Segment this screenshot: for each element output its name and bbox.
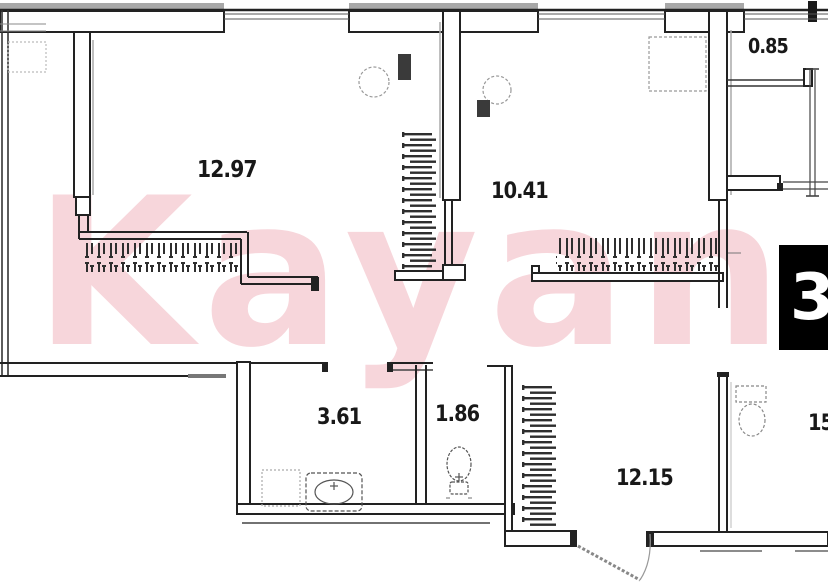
room-area-label-10-41: 10.41 xyxy=(491,181,548,203)
bottom-wall xyxy=(647,532,828,551)
floor-plan: Kayan xyxy=(0,0,828,585)
room-area-label-0-85: 0.85 xyxy=(748,36,788,56)
pier-middle xyxy=(440,11,460,272)
wardrobe-hatch-room1 xyxy=(83,243,239,272)
right-edge-window xyxy=(806,69,819,196)
floor-plan-drawing xyxy=(0,0,828,585)
unit-number: 3 xyxy=(790,266,828,330)
fixtures-room2 xyxy=(477,37,706,117)
middle-wall xyxy=(0,363,433,376)
room-area-label-12-15: 12.15 xyxy=(616,468,673,490)
room-area-label-15-cropped: 15 xyxy=(808,413,828,435)
left-exterior-wall xyxy=(0,10,46,377)
room-area-label-1-86: 1.86 xyxy=(435,404,479,426)
bathroom-walls xyxy=(237,362,514,523)
right-mid-stub-wall xyxy=(727,176,828,191)
sink-symbol-right-room xyxy=(736,386,766,436)
pier-left xyxy=(74,32,93,215)
unit-number-badge: 3 xyxy=(779,245,828,350)
top-exterior-wall xyxy=(0,1,828,32)
balcony-rail xyxy=(727,69,812,86)
fixtures-room1 xyxy=(8,42,411,97)
toilet-symbol xyxy=(446,447,472,498)
door-swing-symbol xyxy=(578,534,650,580)
room-area-label-3-61: 3.61 xyxy=(317,407,361,429)
wardrobe-hatch-hall xyxy=(518,383,556,528)
room-area-label-12-97: 12.97 xyxy=(197,159,257,182)
wardrobe-hatch-room2-right xyxy=(556,238,718,271)
right-lower-wall xyxy=(717,372,731,532)
wardrobe-hatch-room2-left xyxy=(398,130,441,270)
